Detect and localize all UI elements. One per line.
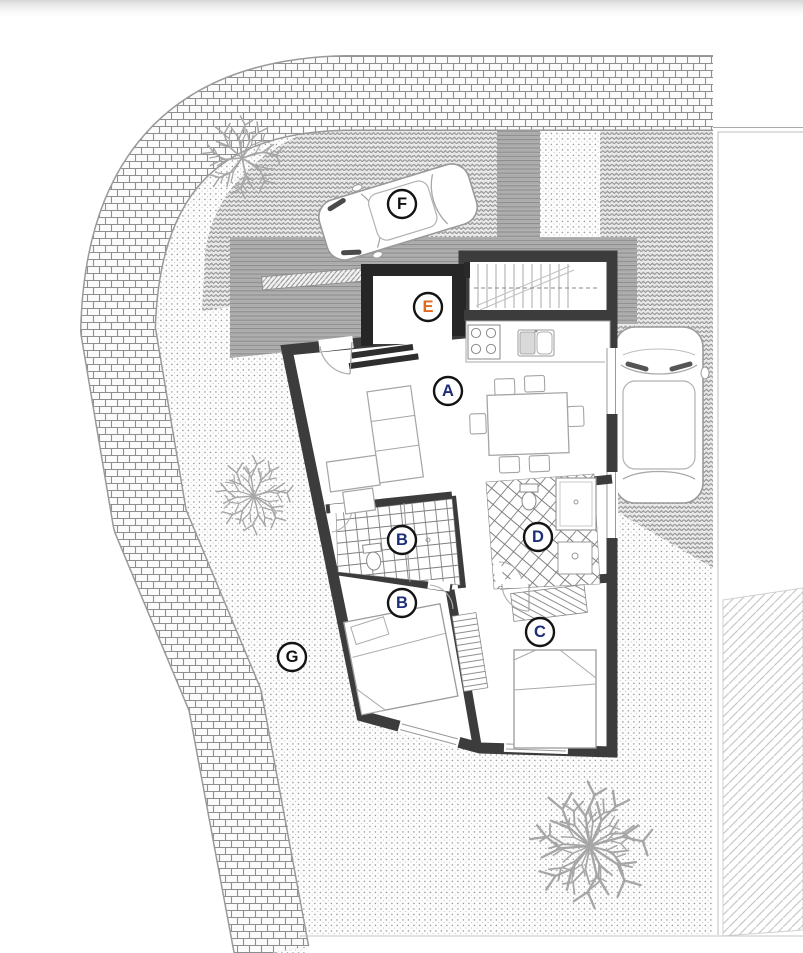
room-label-f: F — [388, 190, 416, 218]
room-label-a: A — [434, 377, 462, 405]
svg-text:G: G — [286, 648, 299, 666]
room-label-b-bath: B — [388, 526, 416, 554]
svg-text:B: B — [396, 531, 408, 549]
toilet — [520, 484, 538, 510]
dotted-strip-top — [540, 127, 600, 239]
bedroom-c — [502, 583, 596, 748]
sink — [558, 542, 592, 574]
room-label-c: C — [526, 618, 554, 646]
bed — [514, 650, 596, 748]
staircase — [464, 251, 612, 321]
top-gradient — [0, 0, 803, 20]
room-label-g: G — [278, 643, 306, 671]
entrance-walk-strip — [497, 127, 540, 239]
room-label-d: D — [524, 523, 552, 551]
site-plan-drawing: A B B C D E F G — [0, 0, 803, 953]
svg-text:C: C — [534, 623, 546, 641]
svg-text:F: F — [397, 195, 407, 213]
svg-text:B: B — [396, 594, 408, 612]
svg-text:E: E — [422, 298, 433, 316]
room-label-b-bedroom: B — [388, 589, 416, 617]
car-parked-right — [609, 327, 709, 503]
room-label-e: E — [414, 293, 442, 321]
kitchen — [466, 321, 610, 362]
svg-text:D: D — [532, 528, 544, 546]
hatch-block-bottom-right — [723, 588, 803, 936]
site-plan: A B B C D E F G — [0, 0, 803, 953]
svg-text:A: A — [442, 382, 454, 400]
